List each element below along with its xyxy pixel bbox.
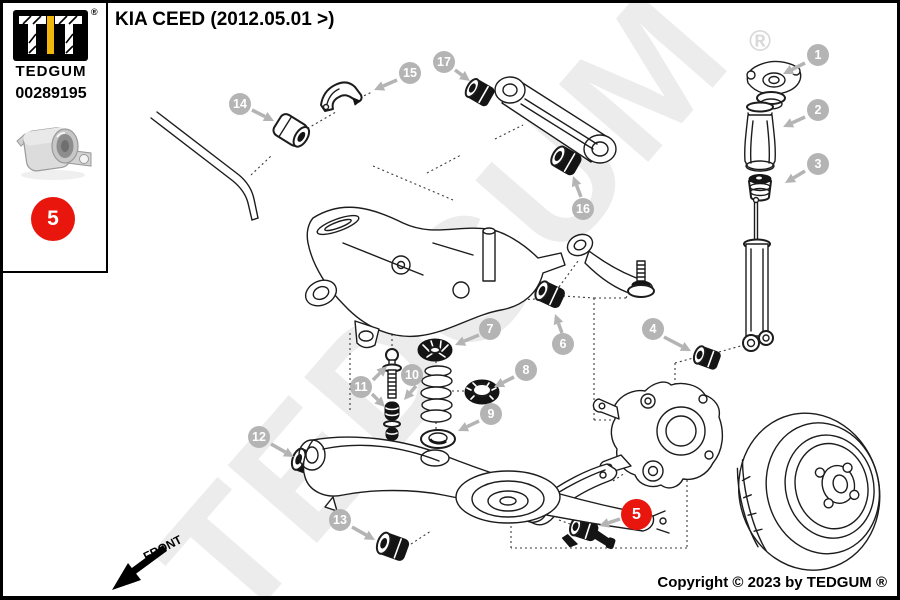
callout-4: 4 (642, 318, 664, 340)
brand-name: TEDGUM (3, 63, 99, 80)
callout-14: 14 (229, 93, 251, 115)
spring-seat-upper-7 (418, 339, 452, 361)
part-position-badge: 5 (31, 197, 75, 241)
dust-boot-2 (745, 103, 776, 172)
callout-17: 17 (433, 51, 455, 73)
callout-13: 13 (329, 509, 351, 531)
callout-15: 15 (399, 62, 421, 84)
stabilizer-link-11 (383, 349, 401, 440)
bushing-13 (374, 531, 410, 562)
spring-pad-9 (421, 430, 455, 448)
callout-12: 12 (248, 426, 270, 448)
stabilizer-clamp-15 (321, 82, 362, 111)
callout-9: 9 (480, 403, 502, 425)
bump-stop-3 (749, 175, 771, 201)
product-photo (17, 126, 91, 180)
callout-16: 16 (572, 198, 594, 220)
stabilizer-bar (151, 112, 258, 220)
coil-spring (421, 366, 452, 422)
part-number: 00289195 (3, 85, 99, 103)
subframe (301, 207, 565, 347)
bearing-ring-8 (465, 380, 499, 404)
callout-6: 6 (552, 333, 574, 355)
lower-control-arm (299, 437, 669, 533)
callout-10: 10 (401, 364, 423, 386)
copyright-notice: Copyright © 2023 by TEDGUM ® (657, 574, 887, 591)
front-label: FRONT (141, 532, 185, 564)
callout-3: 3 (807, 153, 829, 175)
bushing-17 (463, 77, 496, 107)
registered-mark: ® (91, 7, 98, 17)
callout-2: 2 (807, 99, 829, 121)
upper-control-arm (564, 230, 654, 297)
stabilizer-bushing-14 (271, 112, 313, 150)
callout-7: 7 (479, 318, 501, 340)
catalog-image: TEDGUM ® KIA CEED (2012.05.01 >) (0, 0, 900, 600)
callout-11: 11 (350, 376, 372, 398)
shock-absorber (743, 198, 773, 352)
callout-1: 1 (807, 44, 829, 66)
tedgum-logo (13, 10, 88, 61)
suspension-diagram: FRONT (3, 3, 900, 600)
callout-8: 8 (515, 359, 537, 381)
callout-5-highlighted: 5 (621, 499, 652, 530)
wheel-tire (722, 398, 896, 585)
bushing-4 (692, 345, 722, 370)
front-direction-arrow: FRONT (112, 532, 185, 590)
page-title: KIA CEED (2012.05.01 >) (115, 9, 334, 31)
product-info-panel: ® TEDGUM 00289195 5 (3, 3, 108, 273)
